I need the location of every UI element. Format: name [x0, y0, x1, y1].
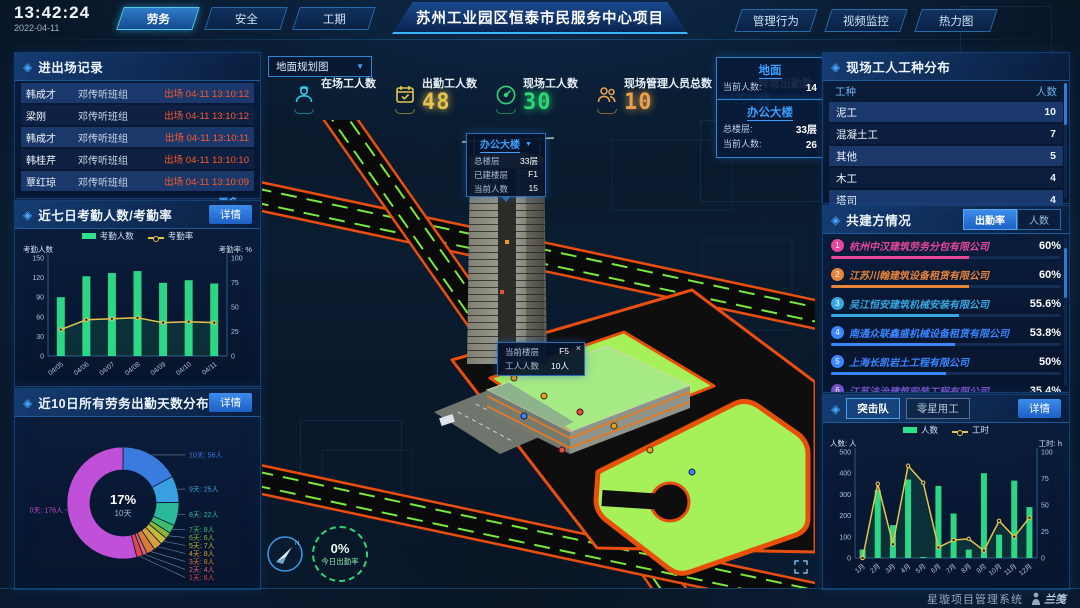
svg-text:04/06: 04/06: [73, 361, 91, 377]
worker-name: 韩成才: [26, 86, 78, 101]
worker-name: 覃红琼: [26, 174, 78, 189]
team-name: 邓传听班组: [78, 86, 164, 101]
tab-labor[interactable]: 劳务: [116, 7, 199, 30]
tooltip-row: 已建楼层F1: [467, 168, 545, 182]
rank-badge: 5: [831, 355, 844, 368]
stat-calendar-check: 出勤工人数48: [393, 75, 477, 114]
panel-header: ◈ 近七日考勤人数/考勤率 详情: [15, 201, 260, 229]
tab-label: 管理行为: [753, 13, 799, 29]
panel-header: ◈ 突击队 零星用工 详情: [823, 395, 1069, 423]
diamond-icon: ◈: [831, 403, 840, 415]
tab-label: 工期: [323, 11, 346, 27]
company-row-top: 6江苏法治建筑安装工程有限公司35.4%: [831, 383, 1061, 393]
svg-text:1月: 1月: [854, 562, 867, 575]
scrollbar[interactable]: [1064, 238, 1067, 386]
team-name: 邓传听班组: [78, 108, 164, 123]
company-value: 35.4%: [1030, 385, 1061, 394]
svg-text:10天: 56人: 10天: 56人: [189, 451, 222, 459]
company-row[interactable]: 1杭州中汉建筑劳务分包有限公司60%: [831, 238, 1061, 263]
legend-line-swatch: [148, 237, 164, 239]
time: 13:42:24: [14, 4, 90, 23]
project-title-banner: 苏州工业园区恒泰市民服务中心项目: [392, 2, 688, 34]
legend-label: 工时: [972, 425, 989, 435]
worker-type: 其他: [836, 149, 857, 164]
date: 2022-04-11: [14, 24, 90, 34]
svg-text:8月: 8月: [960, 562, 973, 575]
svg-text:工时: h: 工时: h: [1039, 438, 1062, 448]
event-time: 出场 04-11 13:10:09: [164, 174, 249, 188]
legend-line-swatch: [952, 431, 968, 433]
table-header: 工种 人数: [823, 81, 1069, 102]
col-type: 工种: [835, 84, 856, 99]
company-value: 55.6%: [1030, 298, 1061, 310]
page-title: 苏州工业园区恒泰市民服务中心项目: [416, 7, 664, 28]
svg-text:2月: 2月: [869, 562, 882, 575]
rank-badge: 3: [831, 297, 844, 310]
tooltip-label: 已建楼层: [474, 169, 508, 181]
svg-text:100: 100: [1041, 450, 1053, 457]
tooltip-value: 33层: [520, 155, 538, 167]
gauge-value: 0%: [331, 541, 350, 556]
svg-text:500: 500: [839, 450, 851, 457]
stat-text: 现场工人数30: [523, 75, 578, 114]
teams-panel: ◈ 突击队 零星用工 详情 人数 工时 01002003004005000255…: [822, 394, 1070, 590]
svg-text:60: 60: [36, 314, 44, 321]
detail-button[interactable]: 详情: [209, 393, 252, 412]
event-time: 出场 04-11 13:10:12: [164, 108, 249, 122]
gauge-icon: [494, 83, 518, 114]
worker-name: 韩成才: [26, 130, 78, 145]
progress-fill: [831, 343, 955, 346]
progress-fill: [831, 256, 969, 259]
tooltip-row: 总楼层33层: [467, 154, 545, 168]
svg-text:5月: 5月: [914, 562, 927, 575]
svg-text:04/11: 04/11: [201, 361, 218, 377]
diamond-icon: ◈: [23, 209, 32, 221]
chart-legend: 人数 工时: [823, 423, 1069, 437]
entry-exit-panel: ◈ 进出场记录 韩成才邓传听班组出场 04-11 13:10:12梁刚邓传听班组…: [14, 52, 261, 199]
progress-track: [831, 372, 1061, 375]
stat-text: 在场工人数: [321, 75, 376, 114]
legend-label: 考勤率: [168, 231, 194, 241]
rank-badge: 6: [831, 384, 844, 393]
left-tab-group: 劳务 安全 工期: [120, 7, 372, 30]
panel-title: 进出场记录: [38, 57, 103, 76]
legend-bar-swatch: [903, 427, 917, 433]
company-row-top: 3吴江恒安建筑机械安装有限公司55.6%: [831, 296, 1061, 311]
svg-text:1天: 6人: 1天: 6人: [189, 574, 215, 582]
entry-exit-list: 韩成才邓传听班组出场 04-11 13:10:12梁刚邓传听班组出场 04-11…: [15, 83, 260, 191]
worker-name: 梁刚: [26, 108, 78, 123]
svg-text:300: 300: [839, 492, 851, 499]
partners-tab-group: 出勤率 人数: [963, 209, 1061, 230]
panel-title: 现场工人工种分布: [846, 57, 950, 76]
tooltip-row: 当前楼层F5: [498, 345, 584, 359]
svg-text:50: 50: [231, 305, 239, 312]
attendance-combo-chart: 03060901201500255075100考勤人数考勤率: %04/0504…: [21, 243, 254, 381]
tooltip-value: F1: [528, 169, 538, 181]
attendance-days-panel: ◈ 近10日所有劳务出勤天数分布 详情 10天: 56人9天: 25人8天: 2…: [14, 388, 261, 590]
svg-text:0: 0: [847, 556, 851, 563]
stat-value: 30: [523, 92, 578, 114]
progress-track: [831, 314, 1061, 317]
company-row[interactable]: 6江苏法治建筑安装工程有限公司35.4%: [831, 383, 1061, 393]
rank-badge: 2: [831, 268, 844, 281]
svg-text:2天: 4人: 2天: 4人: [189, 566, 215, 574]
company-name: 上海长凯岩土工程有限公司: [849, 354, 1034, 369]
calendar-check-icon: [393, 83, 417, 114]
plaza-path: [602, 498, 664, 502]
company-row-top: 4南通众联鑫盛机械设备租赁有限公司53.8%: [831, 325, 1061, 340]
company-name: 江苏法治建筑安装工程有限公司: [849, 383, 1025, 393]
tab-headcount[interactable]: 人数: [1017, 209, 1061, 230]
svg-text:9天: 25人: 9天: 25人: [189, 486, 219, 494]
svg-text:4月: 4月: [899, 562, 912, 575]
worker-icon: [292, 83, 316, 114]
map-view-label: 地面规划图: [276, 59, 329, 74]
diamond-icon: ◈: [831, 214, 840, 226]
svg-text:100: 100: [231, 256, 243, 263]
compass-icon[interactable]: N: [266, 535, 304, 578]
diamond-icon: ◈: [23, 397, 32, 409]
building-tooltip: 办公大楼 ▼ 总楼层33层已建楼层F1当前人数15: [466, 133, 546, 197]
svg-text:200: 200: [839, 513, 851, 520]
legend-bar-swatch: [82, 233, 96, 239]
tab-schedule[interactable]: 工期: [292, 7, 375, 30]
tab-safety[interactable]: 安全: [204, 7, 287, 30]
progress-track: [831, 256, 1061, 259]
svg-text:N: N: [295, 541, 299, 547]
table-row: 泥工10: [829, 102, 1063, 122]
svg-text:0: 0: [231, 354, 235, 361]
people-icon: [595, 83, 619, 114]
svg-text:04/05: 04/05: [47, 361, 65, 377]
worker-count: 4: [1050, 172, 1056, 184]
tab-label: 视频监控: [843, 13, 889, 29]
svg-text:25: 25: [1041, 529, 1049, 536]
fullscreen-icon[interactable]: [794, 560, 808, 579]
stat-gauge: 现场工人数30: [494, 75, 578, 114]
legend-label: 考勤人数: [100, 231, 134, 241]
stat-text: 出勤工人数48: [422, 75, 477, 114]
svg-text:7天: 8人: 7天: 8人: [189, 526, 215, 534]
progress-track: [831, 285, 1061, 288]
event-time: 出场 04-11 13:10:11: [165, 130, 249, 144]
tab-management-behavior[interactable]: 管理行为: [734, 9, 817, 32]
panel-title: 共建方情况: [846, 210, 911, 229]
vendor-logo: 兰笺: [1031, 591, 1066, 607]
tab-label: 安全: [235, 11, 258, 27]
company-name: 江苏川翰建筑设备租赁有限公司: [849, 267, 1034, 282]
progress-track: [831, 343, 1061, 346]
panel-title: 近10日所有劳务出勤天数分布: [38, 393, 209, 412]
panel-header: ◈ 近10日所有劳务出勤天数分布 详情: [15, 389, 260, 417]
svg-text:50: 50: [1041, 503, 1049, 510]
partners-panel: ◈ 共建方情况 出勤率 人数 1杭州中汉建筑劳务分包有限公司60%2江苏川翰建筑…: [822, 205, 1070, 393]
gauge-label: 今日出勤率: [321, 556, 359, 567]
stat-label: 在场工人数: [321, 75, 376, 91]
tab-label: 劳务: [147, 11, 170, 27]
tooltip-title: 办公大楼: [480, 136, 520, 153]
company-value: 60%: [1039, 240, 1061, 252]
svg-text:120: 120: [32, 275, 44, 282]
stat-value: 10: [624, 92, 712, 114]
company-name: 南通众联鑫盛机械设备租赁有限公司: [849, 325, 1025, 340]
svg-text:25: 25: [231, 329, 239, 336]
detail-button[interactable]: 详情: [1018, 399, 1061, 418]
company-row-top: 1杭州中汉建筑劳务分包有限公司60%: [831, 238, 1061, 253]
svg-text:6天: 6人: 6天: 6人: [189, 534, 215, 542]
svg-text:0天: 176人: 0天: 176人: [30, 506, 63, 514]
team-name: 邓传听班组: [78, 130, 165, 145]
chevron-down-icon: ▼: [356, 62, 364, 71]
floor-tooltip: × 当前楼层F5工人人数10人: [497, 342, 585, 376]
svg-text:10天: 10天: [115, 509, 132, 518]
svg-text:400: 400: [839, 471, 851, 478]
system-name: 星璇项目管理系统: [927, 591, 1023, 607]
tooltip-value: F5: [559, 346, 569, 358]
chart-legend: 考勤人数 考勤率: [15, 229, 260, 243]
tooltip-row: 当前人数15: [467, 182, 545, 196]
tab-casual-labor[interactable]: 零星用工: [906, 398, 970, 419]
svg-text:0: 0: [1041, 556, 1045, 563]
company-value: 50%: [1039, 356, 1061, 368]
company-name: 杭州中汉建筑劳务分包有限公司: [849, 238, 1034, 253]
entry-exit-row: 韩成才邓传听班组出场 04-11 13:10:12: [21, 83, 254, 103]
stat-label: 现场工人数: [523, 75, 578, 91]
worker-type-table: 泥工10混凝土工7其他5木工4塔司4: [823, 102, 1069, 210]
svg-text:150: 150: [32, 256, 44, 263]
event-time: 出场 04-11 13:10:12: [164, 86, 249, 100]
entry-exit-row: 韩成才邓传听班组出场 04-11 13:10:11: [21, 127, 254, 147]
tooltip-label: 当前人数: [474, 183, 508, 195]
chevron-down-icon[interactable]: ▼: [525, 141, 532, 148]
worker-type: 泥工: [836, 105, 857, 120]
rank-badge: 1: [831, 239, 844, 252]
logo-icon: [1031, 592, 1041, 605]
svg-text:6月: 6月: [929, 562, 942, 575]
tooltip-row: 工人人数10人: [498, 359, 584, 373]
tab-heatmap[interactable]: 热力图: [914, 9, 997, 32]
team-name: 邓传听班组: [78, 174, 164, 189]
svg-text:4天: 8人: 4天: 8人: [189, 550, 215, 558]
progress-fill: [831, 314, 959, 317]
svg-text:9月: 9月: [975, 562, 988, 575]
event-time: 出场 04-11 13:10:10: [164, 152, 249, 166]
ground-info-card: 地面 当前人数:14: [716, 57, 824, 101]
company-row-top: 2江苏川翰建筑设备租赁有限公司60%: [831, 267, 1061, 282]
clock: 13:42:24 2022-04-11: [14, 4, 90, 34]
tooltip-label: 总楼层: [474, 155, 500, 167]
tooltip-value: 10人: [551, 360, 569, 372]
card-label: 总楼层:: [723, 123, 753, 138]
map-view-select[interactable]: 地面规划图 ▼: [268, 56, 372, 77]
company-row-top: 5上海长凯岩土工程有限公司50%: [831, 354, 1061, 369]
company-row[interactable]: 2江苏川翰建筑设备租赁有限公司60%: [831, 267, 1061, 292]
svg-text:11月: 11月: [1003, 562, 1019, 577]
worker-count: 7: [1050, 128, 1056, 140]
svg-text:3月: 3月: [884, 562, 897, 575]
tooltip-label: 工人人数: [505, 360, 539, 372]
card-value: 33层: [796, 123, 817, 138]
diamond-icon: ◈: [831, 61, 840, 73]
col-count: 人数: [1036, 84, 1057, 99]
svg-text:75: 75: [231, 280, 239, 287]
svg-text:75: 75: [1041, 476, 1049, 483]
svg-text:考勤人数: 考勤人数: [23, 244, 53, 254]
detail-button[interactable]: 详情: [209, 205, 252, 224]
svg-text:04/07: 04/07: [98, 361, 116, 377]
svg-text:0: 0: [40, 354, 44, 361]
svg-text:3天: 8人: 3天: 8人: [189, 558, 215, 566]
dashboard: 13:42:24 2022-04-11 劳务 安全 工期 苏州工业园区恒泰市民服…: [0, 0, 1080, 608]
svg-text:5天: 7人: 5天: 7人: [189, 542, 215, 550]
stat-worker: 在场工人数: [292, 75, 376, 114]
table-row: 其他5: [829, 146, 1063, 166]
teams-combo-chart: 01002003004005000255075100人数: 人工时: h1月2月…: [828, 437, 1064, 583]
diamond-icon: ◈: [23, 61, 32, 73]
worker-name: 韩桂芹: [26, 152, 78, 167]
svg-text:10月: 10月: [987, 562, 1003, 577]
company-value: 53.8%: [1030, 327, 1061, 339]
worker-count: 10: [1044, 106, 1056, 118]
stat-people: 现场管理人员总数10: [595, 75, 712, 114]
right-tab-group: 管理行为 视频监控 热力图: [738, 9, 994, 32]
svg-text:04/09: 04/09: [150, 361, 168, 377]
worker-count: 5: [1050, 150, 1056, 162]
tab-label: 热力图: [939, 13, 974, 29]
company-value: 60%: [1039, 269, 1061, 281]
card-title: 办公大楼: [747, 107, 793, 121]
worker-types-panel: ◈ 现场工人工种分布 工种 人数 泥工10混凝土工7其他5木工4塔司4: [822, 52, 1070, 204]
top-bar: 13:42:24 2022-04-11 劳务 安全 工期 苏州工业园区恒泰市民服…: [0, 0, 1080, 40]
tooltip-value: 15: [529, 183, 538, 195]
team-name: 邓传听班组: [78, 152, 164, 167]
svg-text:90: 90: [36, 295, 44, 302]
svg-text:30: 30: [36, 334, 44, 341]
footer: 星璇项目管理系统 兰笺: [0, 588, 1080, 608]
company-row[interactable]: 5上海长凯岩土工程有限公司50%: [831, 354, 1061, 379]
svg-text:04/10: 04/10: [175, 361, 193, 377]
scrollbar[interactable]: [1064, 83, 1067, 199]
tab-video-monitor[interactable]: 视频监控: [824, 9, 907, 32]
panel-header: ◈ 进出场记录: [15, 53, 260, 81]
legend-label: 人数: [921, 425, 938, 435]
panel-title: 近七日考勤人数/考勤率: [38, 205, 172, 224]
svg-text:04/08: 04/08: [124, 361, 142, 377]
attendance-7day-panel: ◈ 近七日考勤人数/考勤率 详情 考勤人数 考勤率 03060901201500…: [14, 200, 261, 387]
card-value: 14: [806, 81, 817, 96]
company-name: 吴江恒安建筑机械安装有限公司: [849, 296, 1025, 311]
company-row[interactable]: 4南通众联鑫盛机械设备租赁有限公司53.8%: [831, 325, 1061, 350]
close-icon[interactable]: ×: [576, 344, 581, 353]
worker-type: 混凝土工: [836, 127, 878, 142]
panel-header: ◈ 共建方情况 出勤率 人数: [823, 206, 1069, 234]
rank-badge: 4: [831, 326, 844, 339]
svg-text:7月: 7月: [945, 562, 958, 575]
card-label: 当前人数:: [723, 138, 762, 153]
tooltip-label: 当前楼层: [505, 346, 539, 358]
table-row: 混凝土工7: [829, 124, 1063, 144]
tab-assault-team[interactable]: 突击队: [846, 398, 900, 419]
today-attendance-gauge: 0% 今日出勤率: [312, 526, 368, 582]
entry-exit-row: 梁刚邓传听班组出场 04-11 13:10:12: [21, 105, 254, 125]
card-title: 地面: [759, 65, 782, 79]
stat-text: 现场管理人员总数10: [624, 75, 712, 114]
svg-text:100: 100: [839, 534, 851, 541]
svg-text:8天: 22人: 8天: 22人: [189, 511, 219, 519]
tab-attendance-rate[interactable]: 出勤率: [963, 209, 1017, 230]
svg-text:17%: 17%: [110, 492, 136, 507]
panel-header: ◈ 现场工人工种分布: [823, 53, 1069, 81]
table-row: 木工4: [829, 168, 1063, 188]
worker-type: 木工: [836, 171, 857, 186]
attendance-days-donut: 10天: 56人9天: 25人8天: 22人7天: 8人6天: 6人5天: 7人…: [19, 417, 256, 587]
office-building-info-card: 办公大楼 总楼层:33层 当前人数:26: [716, 99, 824, 158]
stat-label: 出勤工人数: [422, 75, 477, 91]
svg-text:人数: 人: 人数: 人: [830, 438, 857, 448]
svg-text:考勤率: %: 考勤率: %: [219, 244, 253, 254]
card-label: 当前人数:: [723, 81, 762, 96]
partners-list: 1杭州中汉建筑劳务分包有限公司60%2江苏川翰建筑设备租赁有限公司60%3吴江恒…: [823, 238, 1069, 393]
entry-exit-row: 韩桂芹邓传听班组出场 04-11 13:10:10: [21, 149, 254, 169]
progress-fill: [831, 285, 969, 288]
stat-value: 48: [422, 92, 477, 114]
stat-label: 现场管理人员总数: [624, 75, 712, 91]
svg-text:12月: 12月: [1017, 562, 1033, 577]
progress-fill: [831, 372, 946, 375]
entry-exit-row: 覃红琼邓传听班组出场 04-11 13:10:09: [21, 171, 254, 191]
card-value: 26: [806, 138, 817, 153]
company-row[interactable]: 3吴江恒安建筑机械安装有限公司55.6%: [831, 296, 1061, 321]
